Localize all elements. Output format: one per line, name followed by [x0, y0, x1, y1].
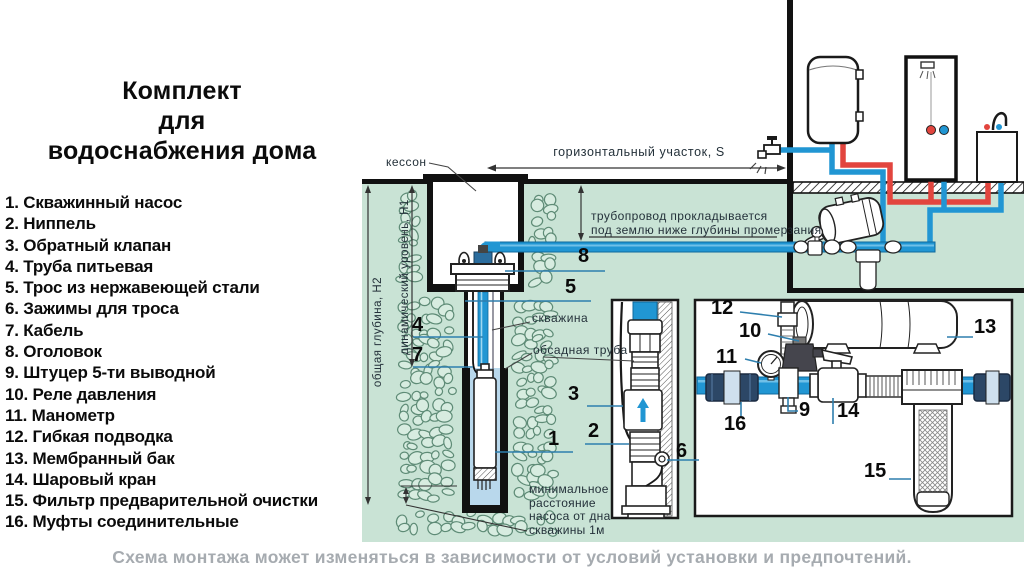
legend-item: 1. Скважинный насос: [5, 192, 361, 213]
part-number-3: 3: [568, 384, 579, 404]
detail-panel-pump: [612, 300, 678, 518]
legend-item: 12. Гибкая подводка: [5, 426, 361, 447]
label-total-depth: общая глубина, Н2: [372, 277, 384, 387]
part-number-2: 2: [588, 421, 599, 441]
title-line-1: Комплект: [8, 76, 356, 106]
part-number-5: 5: [565, 277, 576, 297]
legend-list: 1. Скважинный насос2. Ниппель3. Обратный…: [5, 192, 361, 533]
coupling-left-drawing: [706, 371, 758, 404]
legend-item: 4. Труба питьевая: [5, 256, 361, 277]
label-caisson: кессон: [386, 155, 427, 169]
part-number-15: 15: [864, 461, 886, 481]
part-number-12: 12: [711, 298, 733, 318]
footer-note: Схема монтажа может изменяться в зависим…: [0, 547, 1024, 568]
label-horizontal-section: горизонтальный участок, S: [505, 145, 773, 159]
pipeline-note-line1: трубопровод прокладывается: [591, 209, 822, 223]
legend-item: 15. Фильтр предварительной очистки: [5, 490, 361, 511]
label-dynamic-level-wrap: динамический уровень, Н1: [395, 192, 413, 362]
infographic-water-supply-kit: Комплект для водоснабжения дома 1. Скваж…: [0, 0, 1024, 576]
legend-item: 16. Муфты соединительные: [5, 511, 361, 532]
coupling-right-drawing: [974, 371, 1010, 404]
part-number-16: 16: [724, 414, 746, 434]
label-pipeline-note: трубопровод прокладывается под землю ниж…: [591, 209, 822, 237]
caisson-lid: [423, 174, 528, 182]
legend-item: 9. Штуцер 5-ти выводной: [5, 362, 361, 383]
part-number-10: 10: [739, 321, 761, 341]
label-casing-pipe: обсадная труба: [533, 343, 628, 357]
cable-clamp-drawing: [655, 452, 669, 466]
shower-head-icon: [921, 62, 934, 68]
legend-item: 11. Манометр: [5, 405, 361, 426]
part-number-1: 1: [548, 429, 559, 449]
label-total-depth-wrap: общая глубина, Н2: [368, 252, 386, 412]
part-number-13: 13: [974, 317, 996, 337]
title-line-2: для: [8, 106, 356, 136]
label-well: скважина: [532, 311, 588, 325]
shower-cabin: [906, 57, 956, 180]
label-dynamic-level: динамический уровень, Н1: [399, 199, 411, 355]
part-number-8: 8: [578, 246, 589, 266]
well-pump: [474, 364, 496, 490]
pipeline-note-line2: под землю ниже глубины промерзания: [591, 223, 822, 237]
part-number-14: 14: [837, 401, 859, 421]
ground-line-right: [523, 179, 790, 184]
part-number-4: 4: [412, 315, 423, 335]
ground-line-left: [362, 179, 428, 184]
part-number-11: 11: [716, 347, 737, 367]
boiler: [808, 57, 863, 143]
legend-item: 8. Оголовок: [5, 341, 361, 362]
legend-item: 5. Трос из нержавеющей стали: [5, 277, 361, 298]
membrane-tank-drawing: [791, 301, 957, 353]
part-number-6: 6: [676, 441, 687, 461]
corrugated-hose-drawing: [866, 376, 902, 397]
basement-filter: [856, 250, 880, 262]
part-number-7: 7: [412, 345, 423, 365]
legend-item: 14. Шаровый кран: [5, 469, 361, 490]
legend-item: 13. Мембранный бак: [5, 448, 361, 469]
legend-item: 10. Реле давления: [5, 384, 361, 405]
legend-item: 7. Кабель: [5, 320, 361, 341]
legend-item: 2. Ниппель: [5, 213, 361, 234]
basement-bottom-line: [787, 288, 1024, 293]
page-title: Комплект для водоснабжения дома: [8, 76, 356, 166]
legend-item: 3. Обратный клапан: [5, 235, 361, 256]
part-number-9: 9: [799, 400, 810, 420]
label-min-distance: минимальное расстояние насоса от дна скв…: [529, 483, 617, 537]
legend-item: 6. Зажимы для троса: [5, 298, 361, 319]
title-line-3: водоснабжения дома: [8, 136, 356, 166]
